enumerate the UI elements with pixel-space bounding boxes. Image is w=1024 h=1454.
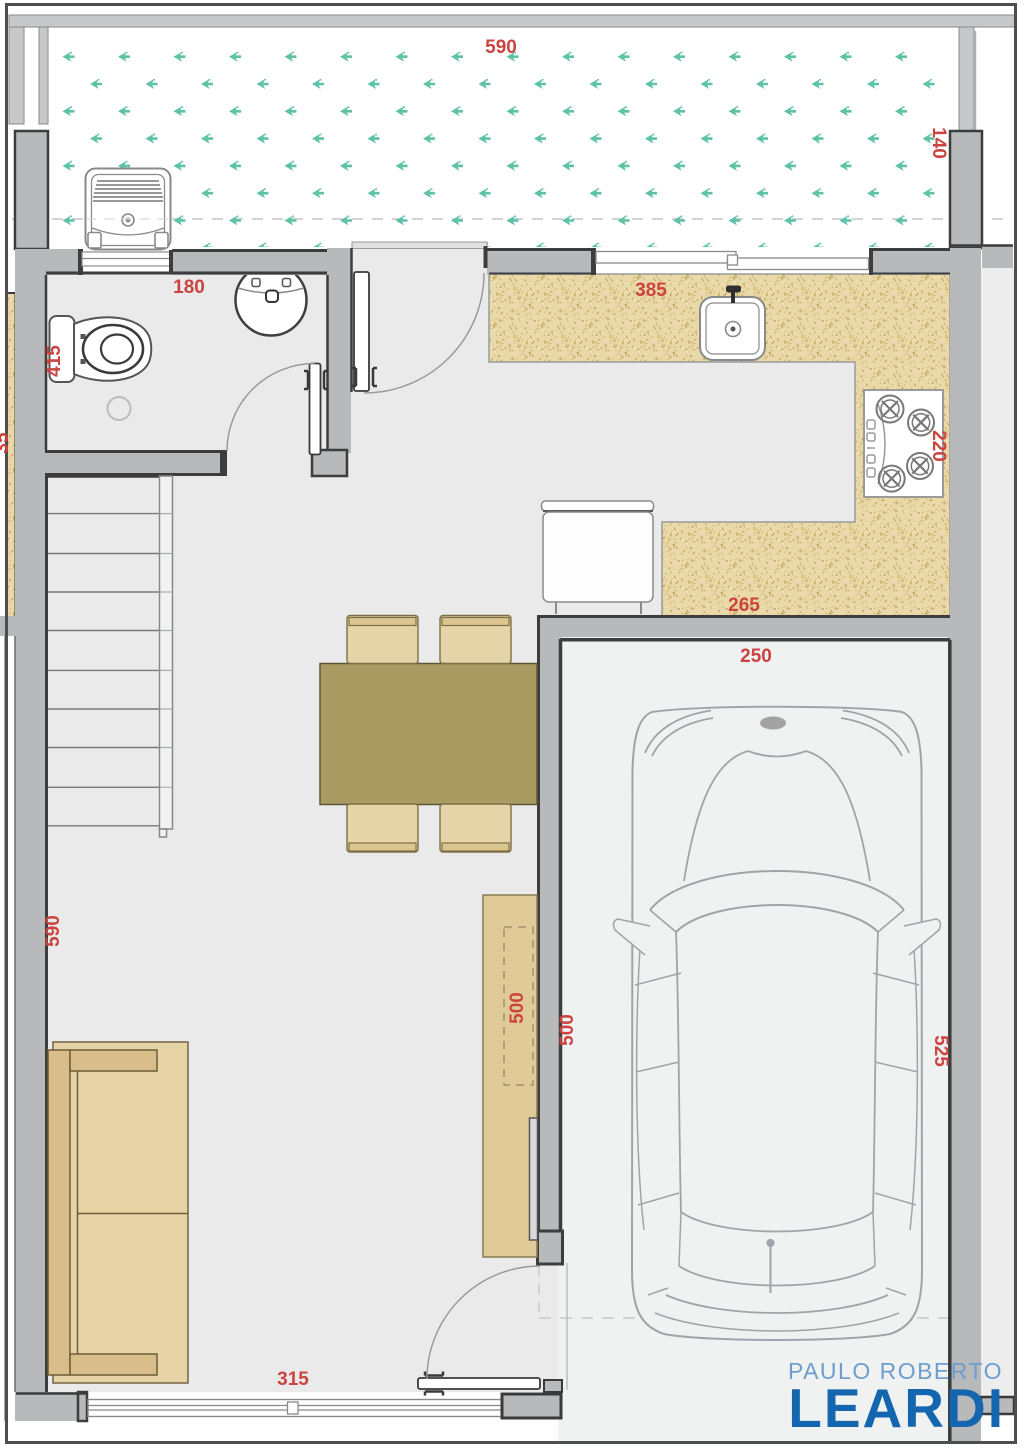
svg-text:180: 180 [173, 277, 205, 298]
svg-text:525: 525 [930, 1035, 951, 1067]
svg-text:265: 265 [728, 595, 760, 616]
svg-text:415: 415 [44, 345, 65, 377]
svg-text:590: 590 [485, 37, 517, 58]
svg-text:35: 35 [0, 432, 13, 454]
svg-text:250: 250 [740, 646, 772, 667]
svg-text:LEARDI: LEARDI [788, 1377, 1005, 1439]
svg-text:140: 140 [928, 127, 949, 159]
svg-text:220: 220 [928, 430, 949, 462]
svg-text:385: 385 [635, 280, 667, 301]
svg-text:590: 590 [43, 915, 64, 947]
svg-text:315: 315 [277, 1369, 309, 1390]
svg-text:500: 500 [557, 1014, 578, 1046]
svg-text:500: 500 [507, 992, 528, 1024]
